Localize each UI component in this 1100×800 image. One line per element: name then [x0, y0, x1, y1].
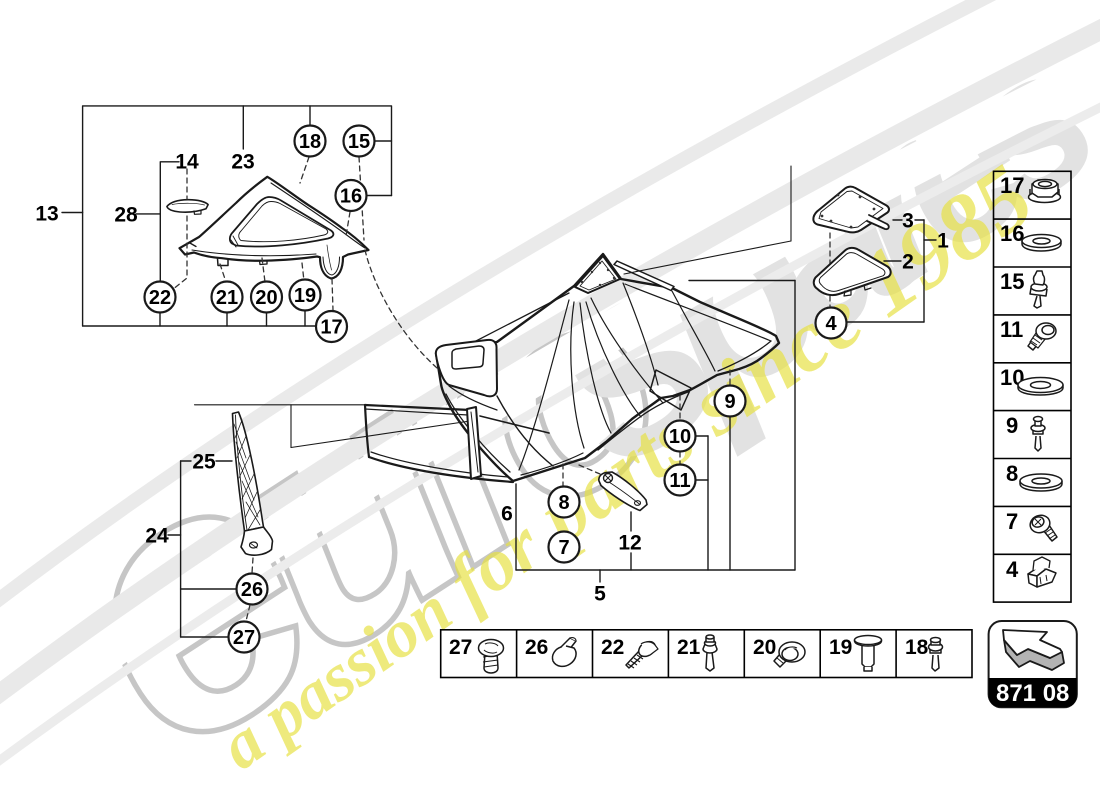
svg-text:27: 27	[233, 627, 255, 649]
svg-text:14: 14	[175, 151, 199, 174]
svg-text:22: 22	[601, 636, 624, 659]
svg-text:28: 28	[114, 204, 138, 227]
svg-text:7: 7	[1006, 509, 1018, 534]
svg-text:17: 17	[320, 317, 342, 339]
svg-text:3: 3	[902, 210, 914, 233]
svg-text:22: 22	[149, 287, 171, 309]
svg-text:18: 18	[905, 636, 929, 659]
svg-text:20: 20	[255, 287, 277, 309]
svg-text:9: 9	[1006, 413, 1018, 438]
svg-text:7: 7	[558, 537, 569, 559]
svg-text:24: 24	[145, 525, 169, 548]
svg-text:8: 8	[1006, 461, 1018, 486]
svg-text:13: 13	[35, 203, 58, 226]
svg-text:20: 20	[753, 636, 776, 659]
svg-text:19: 19	[829, 636, 852, 659]
svg-text:21: 21	[677, 636, 701, 659]
svg-text:11: 11	[669, 470, 690, 492]
svg-text:26: 26	[241, 579, 263, 601]
svg-text:21: 21	[216, 287, 238, 309]
svg-text:19: 19	[294, 285, 316, 307]
svg-text:6: 6	[501, 503, 513, 526]
svg-text:11: 11	[1000, 317, 1023, 342]
svg-text:16: 16	[1000, 221, 1024, 246]
svg-text:23: 23	[231, 151, 254, 174]
svg-text:15: 15	[348, 131, 370, 153]
svg-text:8: 8	[558, 492, 569, 514]
svg-text:1: 1	[937, 230, 949, 253]
svg-text:18: 18	[299, 131, 321, 153]
svg-text:9: 9	[724, 391, 735, 413]
svg-text:17: 17	[1000, 173, 1024, 198]
svg-text:12: 12	[618, 532, 641, 555]
svg-text:27: 27	[449, 636, 472, 659]
svg-text:10: 10	[669, 426, 691, 448]
svg-text:26: 26	[525, 636, 548, 659]
svg-text:25: 25	[192, 451, 216, 474]
svg-text:15: 15	[1000, 269, 1024, 294]
svg-text:16: 16	[340, 186, 362, 208]
svg-text:4: 4	[1006, 557, 1019, 582]
svg-text:871 08: 871 08	[996, 680, 1069, 707]
svg-text:2: 2	[902, 251, 914, 274]
svg-text:4: 4	[825, 313, 837, 335]
svg-text:5: 5	[594, 583, 606, 606]
